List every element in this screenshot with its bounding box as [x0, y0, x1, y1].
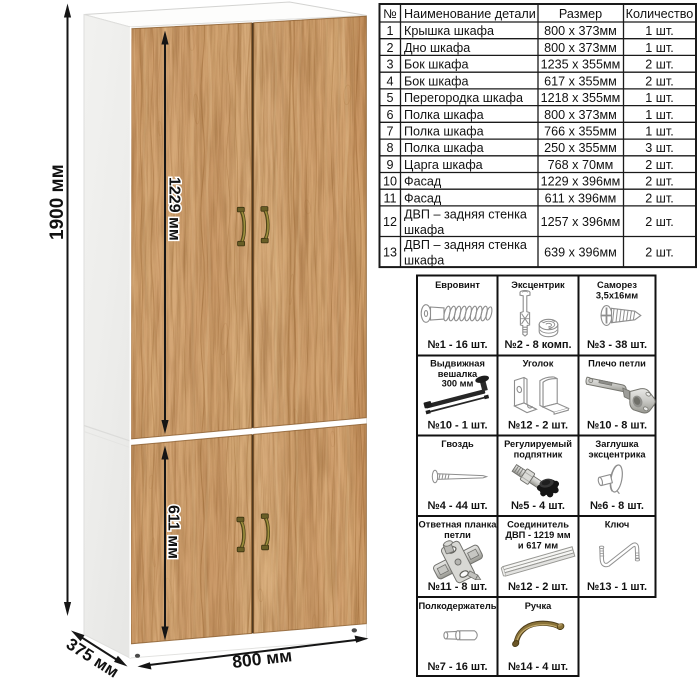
svg-text:800 x 373мм: 800 x 373мм [544, 108, 617, 122]
svg-text:Ключ: Ключ [605, 520, 630, 530]
svg-text:639 x 396мм: 639 x 396мм [544, 246, 617, 260]
svg-text:1257 x 396мм: 1257 x 396мм [541, 215, 621, 229]
svg-text:Выдвижная: Выдвижная [430, 359, 485, 369]
svg-text:Фасад: Фасад [404, 191, 442, 205]
svg-text:1 шт.: 1 шт. [645, 41, 673, 55]
svg-text:шкафа: шкафа [404, 253, 444, 267]
svg-text:№13 - 1 шт.: №13 - 1 шт. [587, 581, 647, 593]
svg-text:611 мм: 611 мм [165, 505, 182, 559]
svg-text:Полка шкафа: Полка шкафа [404, 125, 484, 139]
svg-text:3,5х16мм: 3,5х16мм [596, 290, 638, 300]
svg-text:№12 - 2 шт.: №12 - 2 шт. [508, 581, 568, 593]
svg-text:№5 - 4 шт.: №5 - 4 шт. [511, 500, 565, 512]
svg-text:№: № [383, 7, 397, 21]
svg-text:Размер: Размер [559, 7, 602, 21]
svg-text:Наименование детали: Наименование детали [404, 7, 536, 21]
svg-text:1218 x 355мм: 1218 x 355мм [541, 91, 621, 105]
svg-text:8: 8 [386, 141, 393, 155]
svg-text:№4 - 44 шт.: №4 - 44 шт. [427, 500, 487, 512]
svg-text:№12 - 2 шт.: №12 - 2 шт. [508, 420, 568, 432]
svg-text:Царга шкафа: Царга шкафа [404, 158, 483, 172]
svg-text:1900 мм: 1900 мм [47, 164, 68, 240]
svg-text:Перегородка шкафа: Перегородка шкафа [404, 91, 523, 105]
svg-text:ДВП – задняя стенка: ДВП – задняя стенка [404, 238, 527, 252]
svg-text:№14 - 4 шт.: №14 - 4 шт. [508, 661, 568, 673]
svg-text:3: 3 [386, 58, 393, 72]
svg-text:300 мм: 300 мм [442, 379, 474, 389]
svg-text:766 x 355мм: 766 x 355мм [544, 125, 617, 139]
svg-text:611 x 396мм: 611 x 396мм [545, 191, 617, 205]
svg-text:Полкодержатель: Полкодержатель [419, 601, 497, 611]
svg-text:Заглушка: Заглушка [595, 439, 639, 449]
svg-text:11: 11 [383, 191, 396, 205]
svg-text:10: 10 [383, 175, 397, 189]
svg-text:2: 2 [386, 41, 393, 55]
svg-text:1 шт.: 1 шт. [645, 91, 673, 105]
svg-text:эксцентрика: эксцентрика [588, 449, 646, 459]
svg-text:№10 - 8 шт.: №10 - 8 шт. [587, 420, 647, 432]
svg-text:617 x 355мм: 617 x 355мм [544, 74, 617, 88]
svg-text:1229 мм: 1229 мм [165, 177, 182, 241]
svg-text:768 x 70мм: 768 x 70мм [548, 158, 614, 172]
svg-text:Бок шкафа: Бок шкафа [404, 58, 469, 72]
svg-text:1229 x 396мм: 1229 x 396мм [541, 175, 621, 189]
svg-text:ДВП – задняя стенка: ДВП – задняя стенка [404, 207, 527, 221]
svg-text:Ручка: Ручка [525, 601, 552, 611]
svg-text:№7 - 16 шт.: №7 - 16 шт. [427, 661, 487, 673]
svg-text:2 шт.: 2 шт. [645, 58, 673, 72]
svg-text:1 шт.: 1 шт. [645, 24, 673, 38]
svg-text:Евровинт: Евровинт [435, 280, 480, 290]
svg-text:Полка шкафа: Полка шкафа [404, 108, 484, 122]
svg-text:800 x 373мм: 800 x 373мм [544, 41, 617, 55]
svg-text:9: 9 [386, 158, 393, 172]
svg-text:вешалка: вешалка [438, 369, 478, 379]
svg-text:250 x 355мм: 250 x 355мм [544, 141, 617, 155]
svg-text:13: 13 [383, 246, 397, 260]
svg-text:ДВП - 1219 мм: ДВП - 1219 мм [505, 530, 570, 540]
svg-text:и 617 мм: и 617 мм [518, 540, 558, 550]
svg-text:Дно шкафа: Дно шкафа [404, 41, 470, 55]
svg-text:Крышка шкафа: Крышка шкафа [404, 24, 494, 38]
svg-text:Фасад: Фасад [404, 175, 442, 189]
svg-text:подпятник: подпятник [514, 449, 563, 459]
svg-text:Саморез: Саморез [597, 280, 637, 290]
svg-text:800 x 373мм: 800 x 373мм [544, 24, 617, 38]
svg-text:шкафа: шкафа [404, 223, 444, 237]
svg-text:Количество: Количество [626, 7, 694, 21]
svg-text:2 шт.: 2 шт. [645, 246, 673, 260]
svg-text:№1 - 16 шт.: №1 - 16 шт. [427, 339, 487, 351]
svg-text:Регулируемый: Регулируемый [504, 439, 572, 449]
svg-text:Гвоздь: Гвоздь [441, 439, 474, 449]
svg-text:Бок шкафа: Бок шкафа [404, 74, 469, 88]
svg-text:4: 4 [386, 74, 393, 88]
svg-text:6: 6 [386, 108, 393, 122]
svg-text:1 шт.: 1 шт. [645, 108, 673, 122]
svg-text:2 шт.: 2 шт. [645, 74, 673, 88]
svg-text:Соединитель: Соединитель [507, 520, 569, 530]
svg-text:№2 - 8 комп.: №2 - 8 комп. [504, 339, 571, 351]
svg-text:1235 x 355мм: 1235 x 355мм [541, 58, 621, 72]
svg-text:2 шт.: 2 шт. [645, 191, 673, 205]
svg-text:Уголок: Уголок [523, 359, 554, 369]
svg-text:1: 1 [386, 24, 393, 38]
svg-text:петли: петли [444, 530, 471, 540]
svg-text:№3 - 38 шт.: №3 - 38 шт. [587, 339, 647, 351]
svg-text:2 шт.: 2 шт. [645, 158, 673, 172]
svg-text:Ответная планка: Ответная планка [419, 520, 498, 530]
svg-text:Полка шкафа: Полка шкафа [404, 141, 484, 155]
svg-text:2 шт.: 2 шт. [645, 175, 673, 189]
svg-text:12: 12 [383, 215, 397, 229]
svg-text:7: 7 [386, 125, 393, 139]
svg-text:№6 - 8 шт.: №6 - 8 шт. [590, 500, 644, 512]
svg-text:1 шт.: 1 шт. [645, 125, 673, 139]
svg-text:№10 - 1 шт.: №10 - 1 шт. [427, 420, 487, 432]
svg-text:Плечо петли: Плечо петли [588, 359, 646, 369]
svg-text:3 шт.: 3 шт. [645, 141, 673, 155]
svg-text:5: 5 [386, 91, 393, 105]
svg-text:2 шт.: 2 шт. [645, 215, 673, 229]
svg-text:Эксцентрик: Эксцентрик [511, 280, 565, 290]
